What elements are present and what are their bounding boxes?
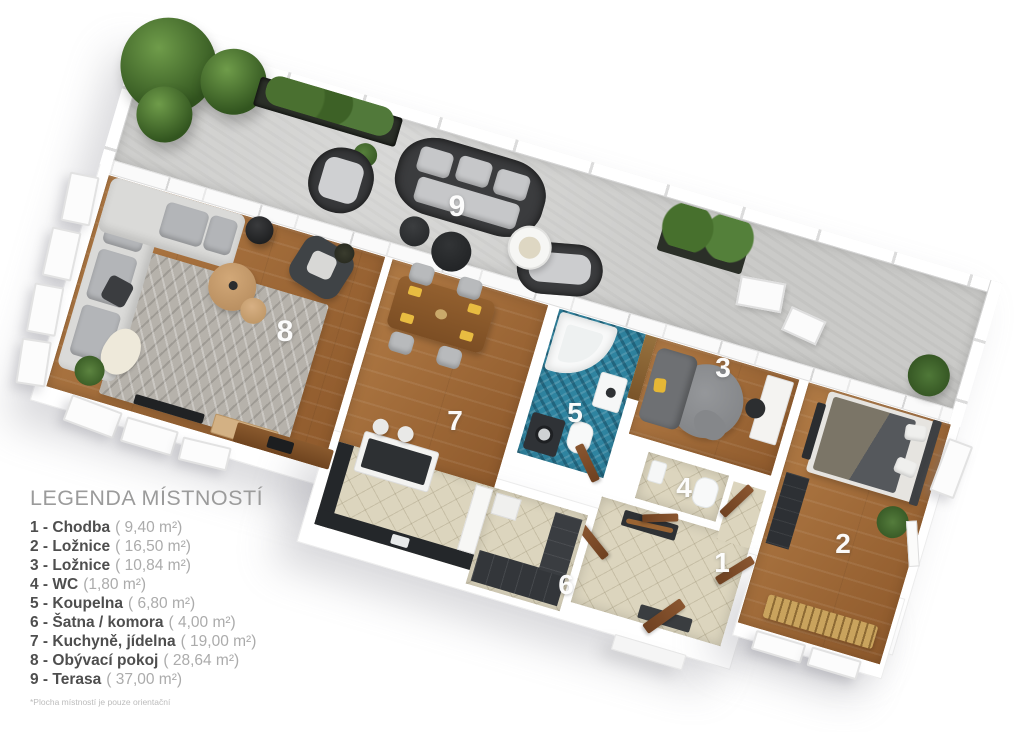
- legend-title: LEGENDA MÍSTNOSTÍ: [30, 486, 263, 511]
- room-label-kuchyne: 7: [447, 405, 463, 437]
- armchair-cushion: [316, 155, 366, 207]
- legend-item: 4 - WC(1,80 m²): [30, 575, 263, 594]
- place-setting: [400, 312, 415, 324]
- legend: LEGENDA MÍSTNOSTÍ 1 - Chodba( 9,40 m²) 2…: [30, 486, 263, 689]
- room-label-obyvaci: 8: [277, 315, 294, 349]
- legend-item: 7 - Kuchyně, jídelna( 19,00 m²): [30, 632, 263, 651]
- legend-item: 2 - Ložnice( 16,50 m²): [30, 537, 263, 556]
- legend-item-label: 3 - Ložnice: [30, 557, 110, 574]
- sofa-cushion: [158, 201, 210, 248]
- legend-item-area: ( 16,50 m²): [115, 538, 191, 555]
- legend-item-area: ( 9,40 m²): [115, 519, 182, 536]
- bed-pillow: [904, 424, 928, 443]
- legend-item-area: ( 37,00 m²): [106, 671, 182, 688]
- place-setting: [407, 285, 422, 297]
- place-setting: [459, 330, 474, 342]
- legend-item: 3 - Ložnice( 10,84 m²): [30, 556, 263, 575]
- legend-item-area: ( 10,84 m²): [115, 557, 191, 574]
- room-label-loznice-3: 3: [715, 352, 731, 384]
- legend-item-area: ( 28,64 m²): [163, 652, 239, 669]
- legend-item-label: 8 - Obývací pokoj: [30, 652, 158, 669]
- sofa-cushion: [454, 154, 494, 189]
- legend-item-area: ( 4,00 m²): [169, 614, 236, 631]
- sofa-cushion: [492, 168, 532, 203]
- legend-item-label: 9 - Terasa: [30, 671, 101, 688]
- room-label-chodba: 1: [714, 547, 730, 579]
- table-decor: [228, 280, 239, 291]
- legend-item-area: ( 19,00 m²): [181, 633, 257, 650]
- legend-item-label: 7 - Kuchyně, jídelna: [30, 633, 176, 650]
- basin: [605, 387, 617, 399]
- legend-item: 1 - Chodba( 9,40 m²): [30, 518, 263, 537]
- legend-item: 5 - Koupelna( 6,80 m²): [30, 594, 263, 613]
- legend-item-area: (1,80 m²): [83, 576, 146, 593]
- room-label-terasa: 9: [449, 190, 466, 224]
- room-label-wc: 4: [676, 472, 692, 504]
- centerpiece: [434, 308, 448, 321]
- place-setting: [467, 303, 482, 315]
- egg-chair-cushion: [516, 234, 543, 261]
- legend-footnote: *Plocha místností je pouze orientační: [30, 697, 170, 707]
- door-to-wc: [642, 513, 678, 522]
- washer-door: [533, 423, 555, 445]
- room-label-loznice-2: 2: [835, 528, 851, 560]
- legend-item-label: 4 - WC: [30, 576, 78, 593]
- room-label-koupelna: 5: [567, 397, 583, 429]
- legend-item-label: 2 - Ložnice: [30, 538, 110, 555]
- floorplan-scene: 1 2 3 4 5 6 7 8 9 LEGENDA MÍSTNOSTÍ 1 - …: [0, 0, 1024, 724]
- legend-item-label: 6 - Šatna / komora: [30, 614, 164, 631]
- room-label-satna: 6: [558, 569, 574, 601]
- legend-item: 6 - Šatna / komora( 4,00 m²): [30, 613, 263, 632]
- sofa-cushion: [415, 145, 455, 180]
- legend-item-area: ( 6,80 m²): [128, 595, 195, 612]
- legend-item: 8 - Obývací pokoj( 28,64 m²): [30, 651, 263, 670]
- legend-item-label: 5 - Koupelna: [30, 595, 123, 612]
- legend-item: 9 - Terasa( 37,00 m²): [30, 670, 263, 689]
- yellow-pillow: [653, 378, 667, 393]
- legend-item-label: 1 - Chodba: [30, 519, 110, 536]
